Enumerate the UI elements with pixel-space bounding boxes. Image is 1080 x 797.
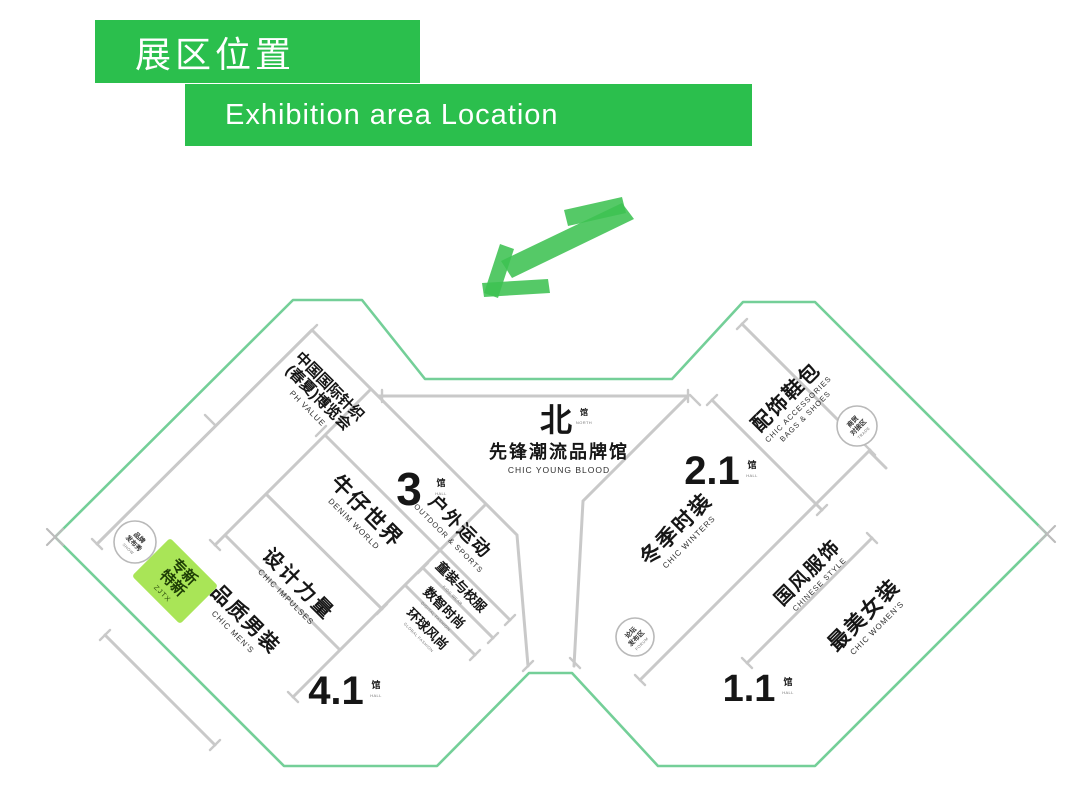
zone-chic-mens: 品质男装 CHIC MEN'S xyxy=(199,579,286,666)
badge-forum-zone: 论坛 发布区 FORUM xyxy=(608,610,662,664)
north-hall-suffix: 馆 xyxy=(580,407,588,417)
zone-chinese-style: 国风服饰 CHINESE STYLE xyxy=(770,535,853,618)
hall-11-suffix: 馆 xyxy=(783,676,792,687)
zone-ph-value: 中国国际针织 (春夏)博览会 PH VALUE xyxy=(272,348,367,443)
direction-arrow xyxy=(482,197,634,298)
zone-chic-winters: 冬季时装 CHIC WINTERS xyxy=(635,488,725,578)
hall-41-suffix: 馆 xyxy=(371,679,380,690)
zone-chic-impulses: 设计力量 CHIC IMPULSES xyxy=(250,544,339,633)
hall-21-number: 2.1 xyxy=(684,449,740,493)
hall-number-4-1: 4.1 馆 HALL xyxy=(308,669,382,713)
hall-3-suffix: 馆 xyxy=(436,477,445,488)
hall-11-number: 1.1 xyxy=(723,668,776,710)
hall-number-1-1: 1.1 馆 HALL xyxy=(723,668,795,710)
venue-outline xyxy=(55,300,1047,766)
north-hall-subtitle: CHIC YOUNG BLOOD xyxy=(508,465,610,475)
zone-denim-world: 牛仔世界 DENIM WORLD xyxy=(318,470,408,560)
north-hall-label: 北 馆 NORTH 先锋潮流品牌馆 CHIC YOUNG BLOOD xyxy=(489,402,629,475)
hall-11-suffix-en: HALL xyxy=(782,690,794,695)
zone-chic-womens: 最美女装 CHIC WOMEN'S xyxy=(823,574,913,664)
corner-cross-right-tip xyxy=(1039,526,1055,542)
north-hall-big: 北 xyxy=(540,402,572,438)
north-hall-suffix-en: NORTH xyxy=(576,420,592,425)
badge-trade-zone: 商贸 对接区 TRADE xyxy=(829,398,886,455)
hall-21-suffix: 馆 xyxy=(747,459,756,470)
hall-21-suffix-en: HALL xyxy=(746,473,758,478)
zone-accessories: 配饰鞋包 CHIC ACCESSORIES BAGS & SHOES xyxy=(745,356,840,451)
corner-cross-left-tip xyxy=(47,529,63,545)
hall-number-2-1: 2.1 馆 HALL xyxy=(684,449,758,493)
zone-outdoor-sports: 户外运动 OUTDOOR & SPORTS xyxy=(412,486,501,575)
hall-41-number: 4.1 xyxy=(308,669,364,713)
exhibition-location-page: 展区位置 Exhibition area Location 中国国际针织 (春夏… xyxy=(0,0,1080,797)
floor-plan-map: 中国国际针织 (春夏)博览会 PH VALUE 牛仔世界 DENIM WORLD… xyxy=(0,0,1080,797)
north-hall-title: 先锋潮流品牌馆 xyxy=(489,441,629,462)
hall-41-suffix-en: HALL xyxy=(370,693,382,698)
